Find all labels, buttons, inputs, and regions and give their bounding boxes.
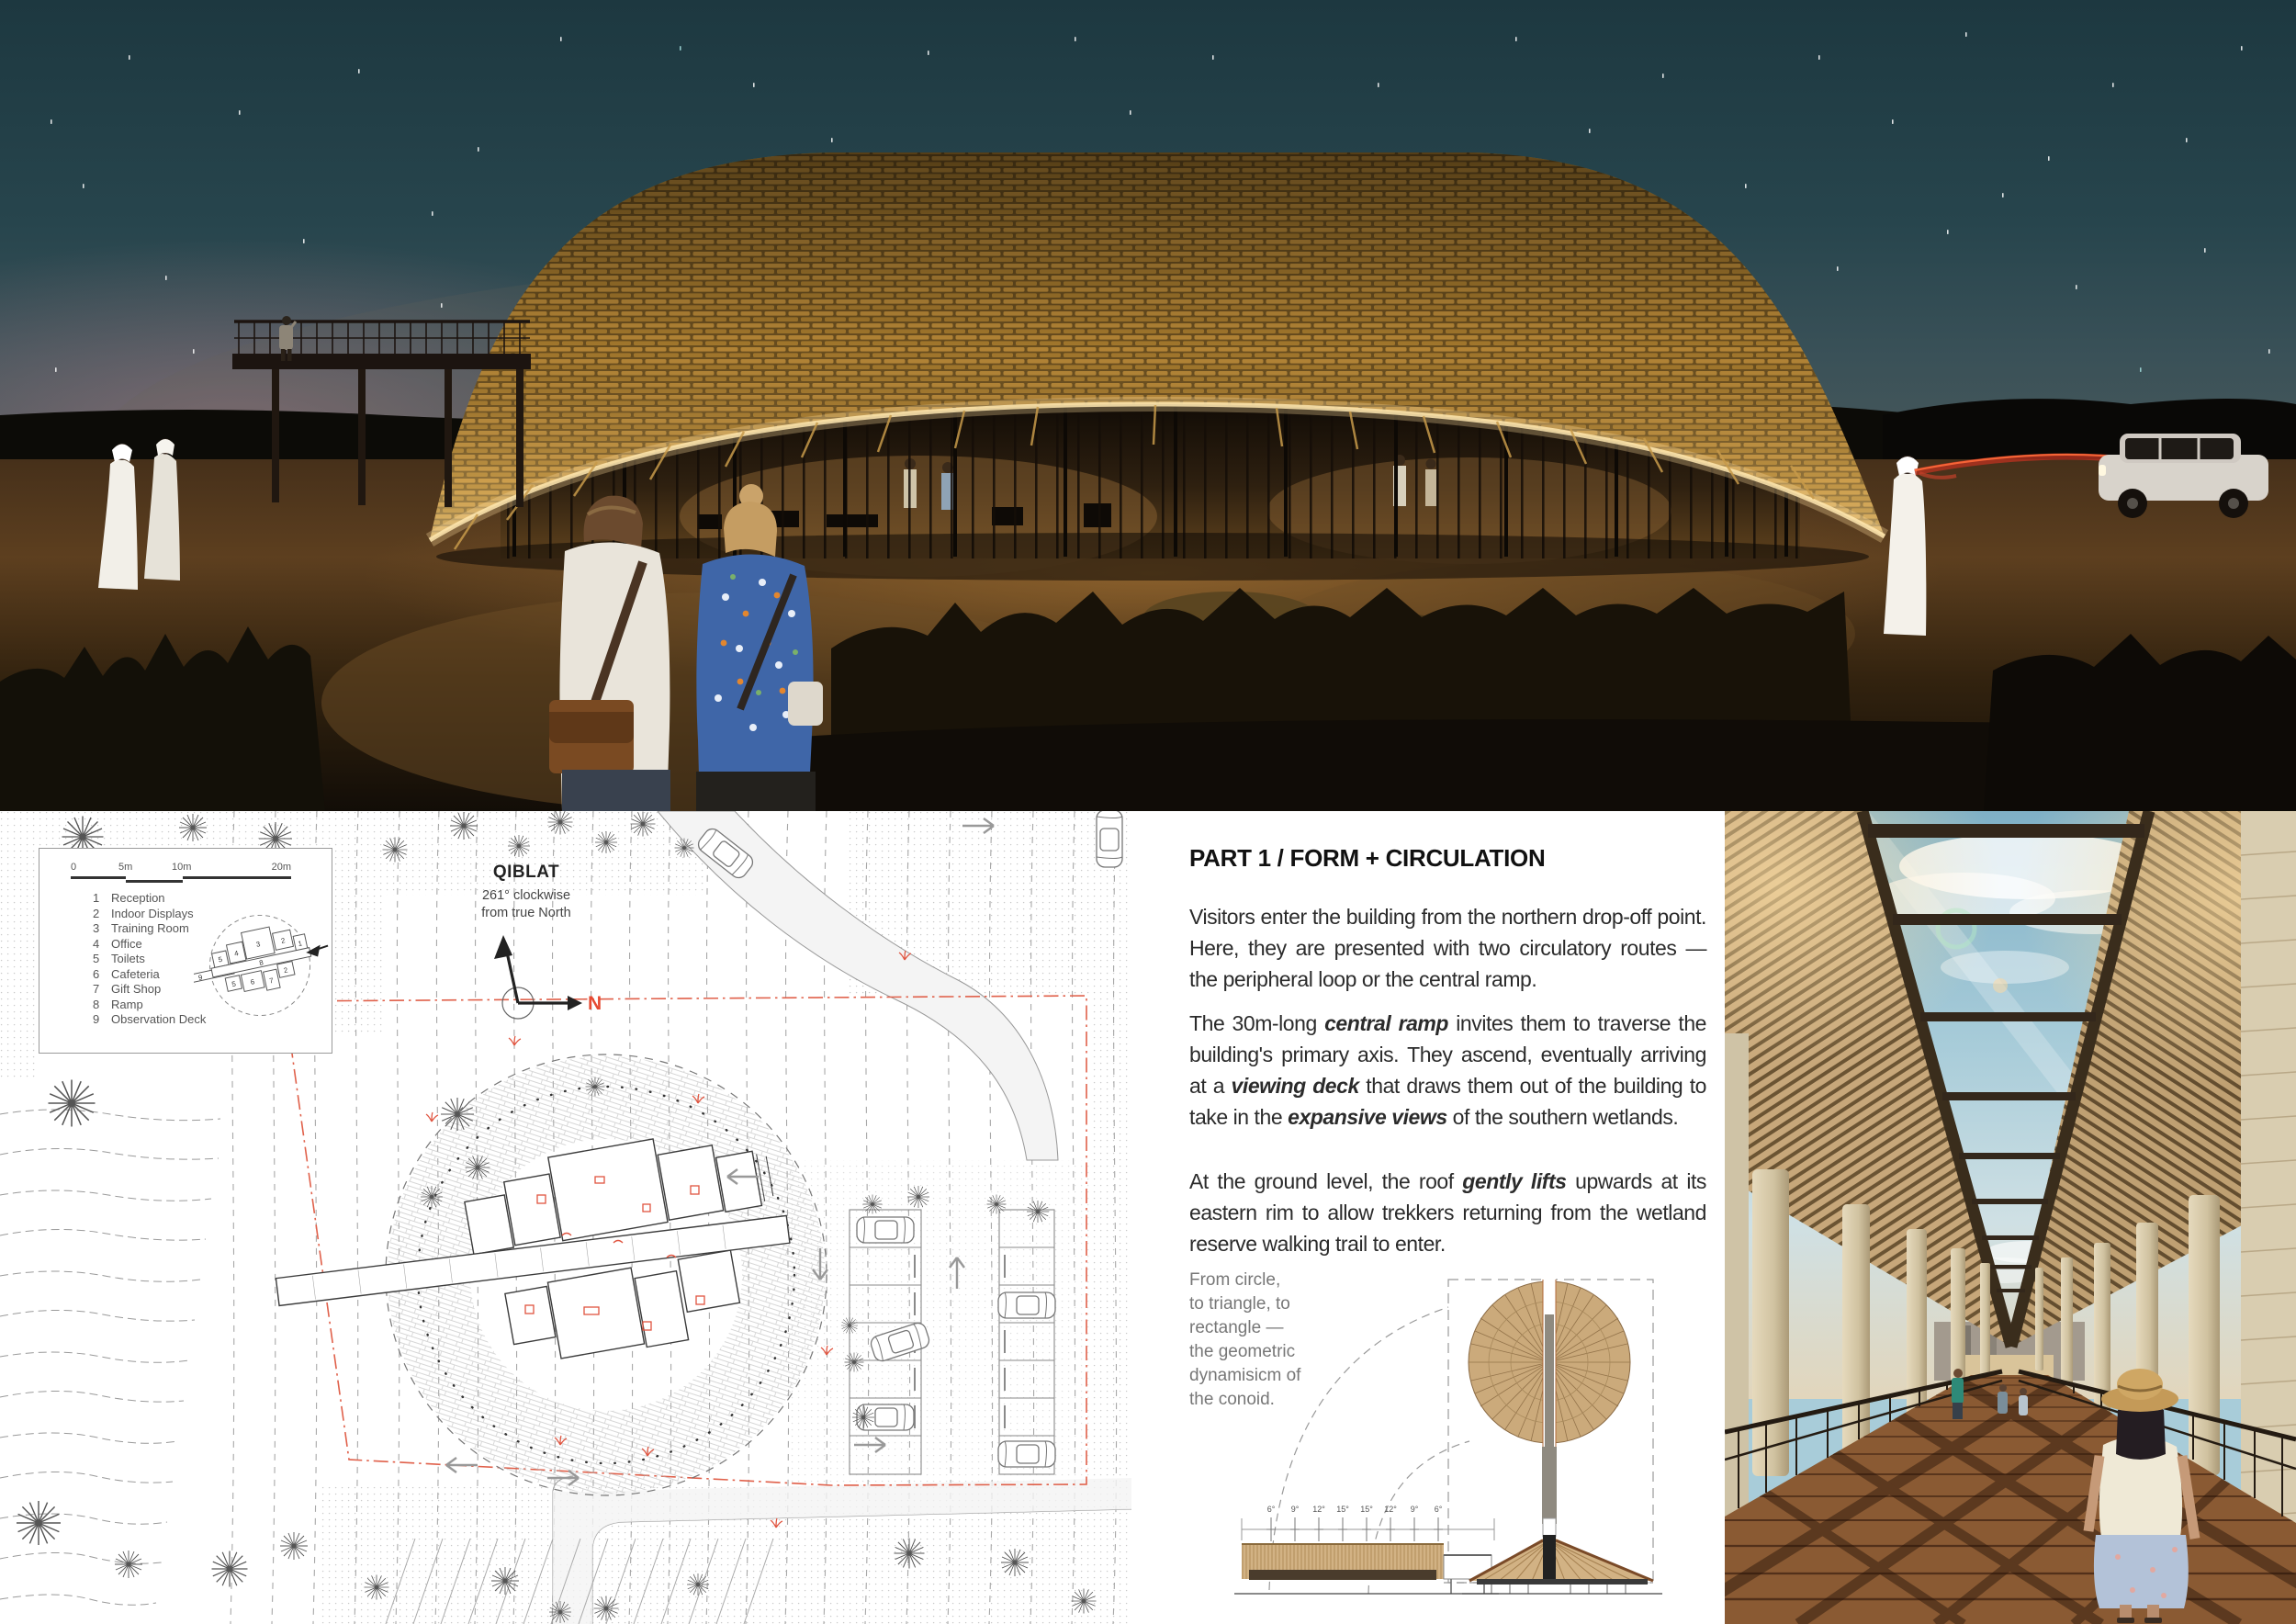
key-plan-diagram: 5 4 3 2 1 9 8 5 6 7 2 xyxy=(194,891,330,1038)
angle-label: 15° xyxy=(1336,1505,1349,1514)
diagram-caption: From circle, to triangle, to rectangle —… xyxy=(1189,1269,1336,1412)
side-elevation xyxy=(1234,1544,1499,1594)
legend-item: 9Observation Deck xyxy=(93,1012,206,1028)
night-render-illustration xyxy=(0,0,2296,811)
legend-item: 1Reception xyxy=(93,891,206,907)
legend-item: 8Ramp xyxy=(93,998,206,1013)
paragraph-3: At the ground level, the roof gently lif… xyxy=(1189,1166,1706,1259)
walkway-photo xyxy=(1725,811,2296,1624)
hair xyxy=(2116,1404,2166,1460)
angle-label: 12° xyxy=(1384,1505,1397,1514)
legend-item: 7Gift Shop xyxy=(93,982,206,998)
scale-bar: 0 5m 10m 20m xyxy=(71,862,291,885)
north-label: N xyxy=(588,993,602,1014)
angle-label: 6° xyxy=(1267,1505,1276,1514)
em-expansive-views: expansive views xyxy=(1288,1105,1447,1129)
angle-label: 6° xyxy=(1435,1505,1443,1514)
pavilion-building xyxy=(430,152,1885,581)
column xyxy=(2035,1268,2043,1370)
em-gently-lifts: gently lifts xyxy=(1462,1169,1566,1193)
angle-annotation-row: 6° 9° 12° 15° 15° 12° 9° 6° xyxy=(1242,1505,1494,1541)
column xyxy=(1842,1204,1870,1454)
walkway-render-illustration xyxy=(1725,811,2296,1624)
angle-label: 15° xyxy=(1360,1505,1373,1514)
em-viewing-deck: viewing deck xyxy=(1232,1074,1359,1098)
column xyxy=(2061,1257,2073,1388)
legend-item: 6Cafeteria xyxy=(93,967,206,983)
legend-item: 4Office xyxy=(93,937,206,953)
roof-plan-circle xyxy=(1469,1278,1630,1524)
legend-box: 0 5m 10m 20m 1Reception 2Indoor Displays… xyxy=(39,848,332,1054)
column xyxy=(1752,1169,1789,1476)
legend-item: 2Indoor Displays xyxy=(93,907,206,922)
column xyxy=(1907,1229,1927,1431)
qiblat-compass: QIBLAT 261° clockwise from true North N xyxy=(448,863,604,1043)
qiblat-note: 261° clockwise from true North xyxy=(448,887,604,922)
car-dropoff xyxy=(1097,811,1122,867)
qiblat-arrows: N xyxy=(448,922,604,1043)
angle-label: 12° xyxy=(1312,1505,1325,1514)
legend-list: 1Reception 2Indoor Displays 3Training Ro… xyxy=(93,891,206,1028)
text-panel: 6° 9° 12° 15° 15° 12° 9° 6° xyxy=(1131,811,1725,1624)
scale-bar-line xyxy=(71,876,291,883)
scale-label-10m: 10m xyxy=(172,862,191,873)
angle-label: 9° xyxy=(1291,1505,1300,1514)
scale-label-20m: 20m xyxy=(272,862,291,873)
wetland-contours xyxy=(0,1110,220,1605)
site-plan-panel: 0 5m 10m 20m 1Reception 2Indoor Displays… xyxy=(0,811,1131,1624)
article-heading: PART 1 / FORM + CIRCULATION xyxy=(1189,844,1706,873)
em-central-ramp: central ramp xyxy=(1324,1011,1448,1035)
paragraph-1: Visitors enter the building from the nor… xyxy=(1189,901,1706,995)
angle-label: 9° xyxy=(1411,1505,1419,1514)
qiblat-title: QIBLAT xyxy=(448,863,604,883)
presentation-board: 0 5m 10m 20m 1Reception 2Indoor Displays… xyxy=(0,0,2296,1624)
hero-night-render xyxy=(0,0,2296,811)
legend-item: 3Training Room xyxy=(93,921,206,937)
legend-item: 5Toilets xyxy=(93,952,206,967)
entry-arrow-icon xyxy=(309,946,328,956)
scale-label-5m: 5m xyxy=(118,862,132,873)
ramp-stem xyxy=(1542,1447,1557,1524)
scale-label-0: 0 xyxy=(71,862,76,873)
paragraph-2: The 30m-long central ramp invites them t… xyxy=(1189,1008,1706,1133)
column xyxy=(1980,1263,1990,1382)
